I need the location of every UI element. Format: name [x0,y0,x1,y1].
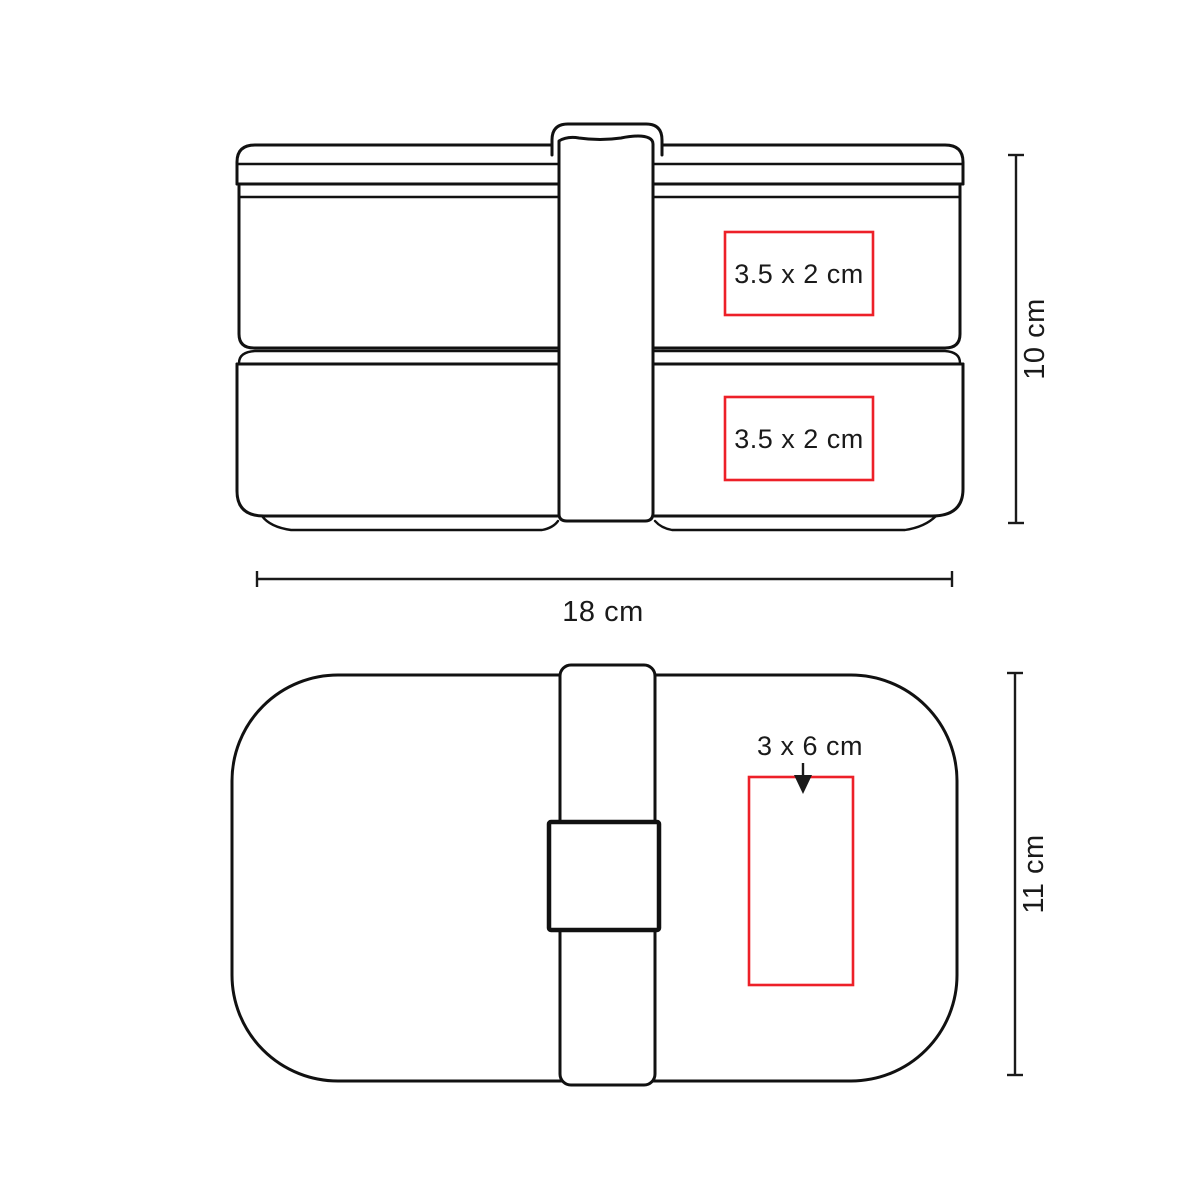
front-height-dimension: 10 cm [1008,155,1051,523]
print-area-bottom-label: 3.5 x 2 cm [734,424,864,454]
diagram-svg: 3.5 x 2 cm 3.5 x 2 cm 10 cm 18 cm [0,0,1200,1200]
print-area-lid-label: 3 x 6 cm [757,731,863,761]
top-view-height-dimension: 11 cm [1007,673,1050,1075]
front-view: 3.5 x 2 cm 3.5 x 2 cm 10 cm 18 cm [237,124,1051,628]
top-view: 3 x 6 cm 11 cm [232,665,1050,1085]
print-area-top-label: 3.5 x 2 cm [734,259,864,289]
arrow-head [794,775,812,794]
front-height-label: 10 cm [1019,298,1051,379]
base-rim-left [262,516,558,530]
strap-front [559,136,653,521]
base-rim-right [655,516,936,530]
top-view-height-label: 11 cm [1018,834,1050,913]
strap-buckle [549,822,659,930]
front-width-dimension: 18 cm [257,571,952,628]
lunchbox-dimension-diagram: 3.5 x 2 cm 3.5 x 2 cm 10 cm 18 cm [0,0,1200,1200]
print-area-lid-rect [749,777,853,985]
arrow-down-icon [794,763,812,794]
front-width-label: 18 cm [562,596,643,628]
